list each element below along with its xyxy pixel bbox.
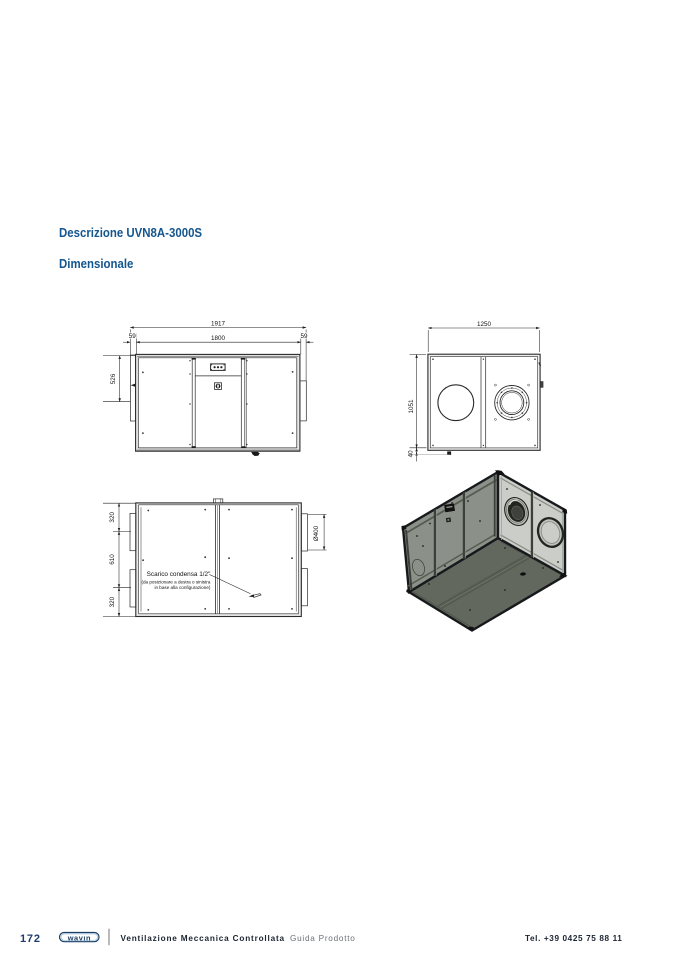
svg-text:1051: 1051 — [408, 399, 415, 414]
svg-text:in base alla configurazione): in base alla configurazione) — [154, 585, 210, 590]
svg-text:320: 320 — [109, 596, 116, 607]
svg-text:Tel. +39 0425 75 88 11: Tel. +39 0425 75 88 11 — [525, 934, 622, 943]
svg-text:610: 610 — [109, 554, 116, 565]
svg-text:59: 59 — [129, 333, 137, 340]
svg-text:59: 59 — [300, 333, 308, 340]
svg-text:Guida Prodotto: Guida Prodotto — [290, 934, 356, 943]
svg-text:40: 40 — [408, 450, 415, 458]
svg-text:1800: 1800 — [211, 335, 226, 342]
svg-text:Scarico condensa 1/2": Scarico condensa 1/2" — [147, 571, 211, 578]
svg-text:1250: 1250 — [477, 321, 492, 328]
svg-text:320: 320 — [109, 512, 116, 523]
svg-text:Ventilazione Meccanica Control: Ventilazione Meccanica Controllata — [121, 934, 285, 943]
svg-text:(da posizionare a destra o sin: (da posizionare a destra o sinistra — [141, 579, 210, 584]
svg-text:wavın: wavın — [67, 933, 91, 942]
svg-text:172: 172 — [20, 933, 41, 945]
svg-text:526: 526 — [110, 373, 117, 384]
svg-text:1917: 1917 — [211, 320, 226, 327]
svg-text:Ø400: Ø400 — [313, 525, 320, 541]
